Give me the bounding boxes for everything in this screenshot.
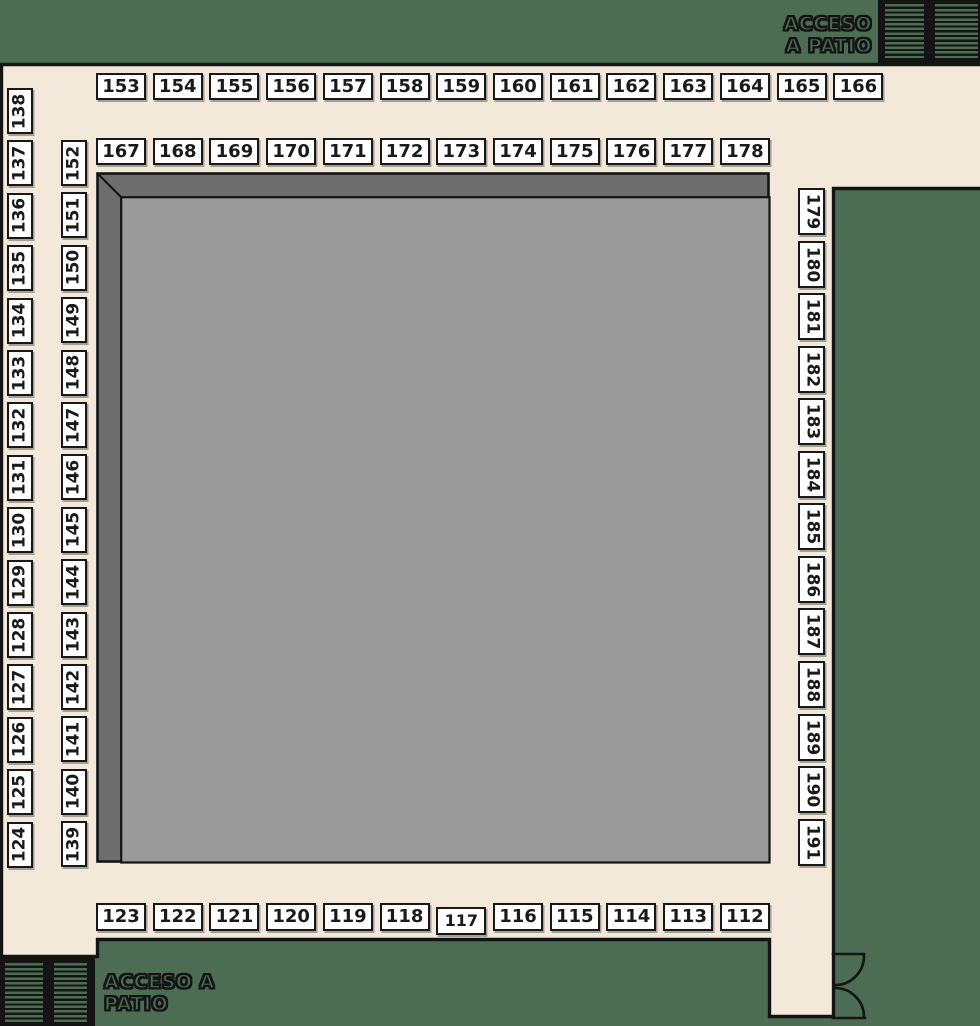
- stall-191[interactable]: 191: [798, 819, 825, 866]
- stall-123[interactable]: 123: [96, 903, 146, 931]
- access-patio-label-bottom-left: ACCESO A PATIO: [104, 971, 215, 1015]
- stall-175[interactable]: 175: [550, 138, 600, 165]
- stall-number: 115: [556, 908, 594, 926]
- stall-number: 131: [12, 460, 29, 496]
- stall-number: 176: [613, 143, 651, 161]
- stall-155[interactable]: 155: [209, 73, 259, 100]
- stall-183[interactable]: 183: [798, 398, 825, 445]
- stall-number: 133: [12, 355, 29, 391]
- stall-number: 184: [803, 457, 820, 493]
- stall-168[interactable]: 168: [153, 138, 203, 165]
- stall-112[interactable]: 112: [720, 903, 770, 931]
- stall-139[interactable]: 139: [61, 821, 87, 867]
- stall-126[interactable]: 126: [7, 717, 33, 763]
- stall-174[interactable]: 174: [493, 138, 543, 165]
- stall-187[interactable]: 187: [798, 608, 825, 655]
- stall-number: 116: [499, 908, 537, 926]
- access-patio-label-top-right: ACCESO A PATIO: [784, 13, 872, 57]
- stall-number: 156: [272, 78, 310, 96]
- stall-number: 167: [102, 143, 140, 161]
- stall-165[interactable]: 165: [777, 73, 827, 100]
- stall-177[interactable]: 177: [663, 138, 713, 165]
- stall-186[interactable]: 186: [798, 556, 825, 603]
- stall-121[interactable]: 121: [209, 903, 259, 931]
- stall-number: 139: [66, 826, 83, 862]
- stall-number: 157: [329, 78, 367, 96]
- stall-141[interactable]: 141: [61, 716, 87, 762]
- stall-number: 172: [386, 143, 424, 161]
- stall-number: 173: [443, 143, 481, 161]
- stall-number: 122: [159, 908, 197, 926]
- stall-132[interactable]: 132: [7, 402, 33, 448]
- stall-129[interactable]: 129: [7, 560, 33, 606]
- stall-number: 145: [66, 512, 83, 548]
- stall-128[interactable]: 128: [7, 612, 33, 658]
- access-label-line: A PATIO: [784, 35, 872, 57]
- stall-182[interactable]: 182: [798, 346, 825, 393]
- stall-171[interactable]: 171: [323, 138, 373, 165]
- stall-number: 153: [102, 78, 140, 96]
- stall-number: 166: [840, 78, 878, 96]
- stall-number: 121: [216, 908, 254, 926]
- stall-number: 136: [12, 198, 29, 234]
- stall-number: 119: [329, 908, 367, 926]
- stall-188[interactable]: 188: [798, 661, 825, 708]
- stall-135[interactable]: 135: [7, 245, 33, 291]
- stair-flight-icon: [933, 0, 980, 60]
- stall-185[interactable]: 185: [798, 503, 825, 550]
- stall-133[interactable]: 133: [7, 350, 33, 396]
- stall-146[interactable]: 146: [61, 454, 87, 500]
- stall-number: 159: [443, 78, 481, 96]
- stall-number: 158: [386, 78, 424, 96]
- stair-flight-icon: [3, 959, 45, 1026]
- stall-number: 185: [803, 509, 820, 545]
- stall-151[interactable]: 151: [61, 192, 87, 238]
- stall-178[interactable]: 178: [720, 138, 770, 165]
- stall-number: 124: [12, 827, 29, 863]
- courtyard: [121, 197, 769, 862]
- stall-number: 117: [445, 913, 478, 929]
- stall-number: 178: [726, 143, 764, 161]
- stairs-top-right-icon: [878, 0, 980, 64]
- stall-number: 155: [216, 78, 254, 96]
- stall-190[interactable]: 190: [798, 766, 825, 813]
- stall-number: 129: [12, 565, 29, 601]
- stall-137[interactable]: 137: [7, 140, 33, 186]
- access-label-line: ACCESO A: [104, 971, 215, 993]
- stall-116[interactable]: 116: [493, 903, 543, 931]
- stall-number: 137: [12, 146, 29, 182]
- stall-173[interactable]: 173: [436, 138, 486, 165]
- stall-161[interactable]: 161: [550, 73, 600, 100]
- stairs-bottom-left-icon: [0, 955, 95, 1026]
- stall-number: 127: [12, 670, 29, 706]
- stall-125[interactable]: 125: [7, 769, 33, 815]
- stall-number: 149: [66, 302, 83, 338]
- stall-number: 113: [669, 908, 707, 926]
- floor-plan-base: [0, 0, 980, 1026]
- stall-167[interactable]: 167: [96, 138, 146, 165]
- stall-122[interactable]: 122: [153, 903, 203, 931]
- stall-152[interactable]: 152: [61, 140, 87, 186]
- stall-160[interactable]: 160: [493, 73, 543, 100]
- stall-144[interactable]: 144: [61, 559, 87, 605]
- stall-number: 120: [272, 908, 310, 926]
- floor-plan: ACCESO A PATIO ACCESO A PATIO 1531541551…: [0, 0, 980, 1026]
- stall-170[interactable]: 170: [266, 138, 316, 165]
- stall-number: 151: [66, 198, 83, 234]
- stall-184[interactable]: 184: [798, 451, 825, 498]
- access-label-line: ACCESO: [784, 13, 872, 35]
- stall-number: 187: [803, 614, 820, 650]
- stall-number: 169: [216, 143, 254, 161]
- stall-number: 182: [803, 351, 820, 387]
- stall-number: 138: [12, 93, 29, 129]
- stall-143[interactable]: 143: [61, 612, 87, 658]
- stall-number: 152: [66, 145, 83, 181]
- stall-number: 126: [12, 722, 29, 758]
- stall-number: 144: [66, 564, 83, 600]
- stall-179[interactable]: 179: [798, 188, 825, 235]
- door-icon: [833, 954, 865, 1018]
- stall-number: 171: [329, 143, 367, 161]
- stall-number: 175: [556, 143, 594, 161]
- stall-113[interactable]: 113: [663, 903, 713, 931]
- stall-number: 140: [66, 774, 83, 810]
- access-label-line: PATIO: [104, 993, 215, 1015]
- stall-120[interactable]: 120: [266, 903, 316, 931]
- stall-number: 150: [66, 250, 83, 286]
- stall-131[interactable]: 131: [7, 455, 33, 501]
- stall-142[interactable]: 142: [61, 664, 87, 710]
- stall-number: 148: [66, 355, 83, 391]
- stall-number: 134: [12, 303, 29, 339]
- stall-number: 189: [803, 719, 820, 755]
- stall-159[interactable]: 159: [436, 73, 486, 100]
- stall-number: 162: [613, 78, 651, 96]
- stall-172[interactable]: 172: [380, 138, 430, 165]
- stall-number: 146: [66, 460, 83, 496]
- stall-number: 161: [556, 78, 594, 96]
- stall-164[interactable]: 164: [720, 73, 770, 100]
- stall-158[interactable]: 158: [380, 73, 430, 100]
- stall-number: 186: [803, 562, 820, 598]
- stall-number: 143: [66, 617, 83, 653]
- stall-118[interactable]: 118: [380, 903, 430, 931]
- stall-number: 128: [12, 617, 29, 653]
- stall-115[interactable]: 115: [550, 903, 600, 931]
- stall-number: 132: [12, 408, 29, 444]
- stall-163[interactable]: 163: [663, 73, 713, 100]
- stall-124[interactable]: 124: [7, 822, 33, 868]
- stall-140[interactable]: 140: [61, 769, 87, 815]
- stall-number: 112: [726, 908, 764, 926]
- stall-number: 135: [12, 250, 29, 286]
- stall-181[interactable]: 181: [798, 293, 825, 340]
- stall-147[interactable]: 147: [61, 402, 87, 448]
- stall-number: 114: [613, 908, 651, 926]
- stall-number: 174: [499, 143, 537, 161]
- stall-162[interactable]: 162: [606, 73, 656, 100]
- stall-number: 188: [803, 667, 820, 703]
- stall-number: 177: [669, 143, 707, 161]
- stall-149[interactable]: 149: [61, 297, 87, 343]
- stall-157[interactable]: 157: [323, 73, 373, 100]
- stall-156[interactable]: 156: [266, 73, 316, 100]
- stair-flight-icon: [883, 0, 926, 60]
- stair-divider: [45, 959, 52, 1026]
- stair-divider: [926, 0, 933, 60]
- stall-145[interactable]: 145: [61, 507, 87, 553]
- stall-number: 123: [102, 908, 140, 926]
- stall-number: 163: [669, 78, 707, 96]
- stall-148[interactable]: 148: [61, 350, 87, 396]
- stall-136[interactable]: 136: [7, 193, 33, 239]
- stall-153[interactable]: 153: [96, 73, 146, 100]
- stall-169[interactable]: 169: [209, 138, 259, 165]
- stall-number: 142: [66, 669, 83, 705]
- stall-number: 154: [159, 78, 197, 96]
- stall-154[interactable]: 154: [153, 73, 203, 100]
- stall-number: 190: [803, 772, 820, 808]
- stair-flight-icon: [52, 959, 89, 1026]
- stall-150[interactable]: 150: [61, 245, 87, 291]
- stall-number: 130: [12, 512, 29, 548]
- stall-number: 118: [386, 908, 424, 926]
- stall-number: 160: [499, 78, 537, 96]
- stall-119[interactable]: 119: [323, 903, 373, 931]
- stall-189[interactable]: 189: [798, 714, 825, 761]
- stall-130[interactable]: 130: [7, 507, 33, 553]
- stall-number: 125: [12, 774, 29, 810]
- stall-114[interactable]: 114: [606, 903, 656, 931]
- stall-134[interactable]: 134: [7, 298, 33, 344]
- stall-number: 147: [66, 407, 83, 443]
- stall-number: 141: [66, 722, 83, 758]
- stall-number: 181: [803, 299, 820, 335]
- stall-180[interactable]: 180: [798, 241, 825, 288]
- stall-number: 180: [803, 246, 820, 282]
- stall-117[interactable]: 117: [436, 907, 486, 935]
- stall-number: 191: [803, 824, 820, 860]
- stall-number: 168: [159, 143, 197, 161]
- stall-number: 170: [272, 143, 310, 161]
- stall-number: 165: [783, 78, 821, 96]
- stall-number: 179: [803, 194, 820, 230]
- stall-138[interactable]: 138: [7, 88, 33, 134]
- stall-166[interactable]: 166: [833, 73, 883, 100]
- stall-127[interactable]: 127: [7, 664, 33, 710]
- stall-176[interactable]: 176: [606, 138, 656, 165]
- stall-number: 183: [803, 404, 820, 440]
- stall-number: 164: [726, 78, 764, 96]
